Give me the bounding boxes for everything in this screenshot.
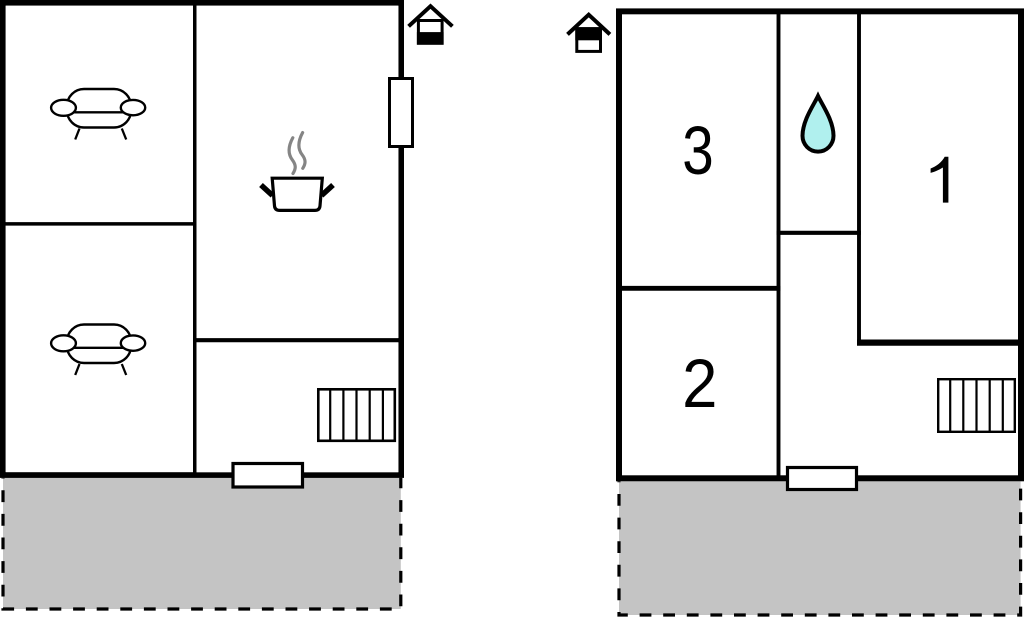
svg-text:3: 3 xyxy=(682,113,713,190)
svg-text:2: 2 xyxy=(682,345,717,422)
